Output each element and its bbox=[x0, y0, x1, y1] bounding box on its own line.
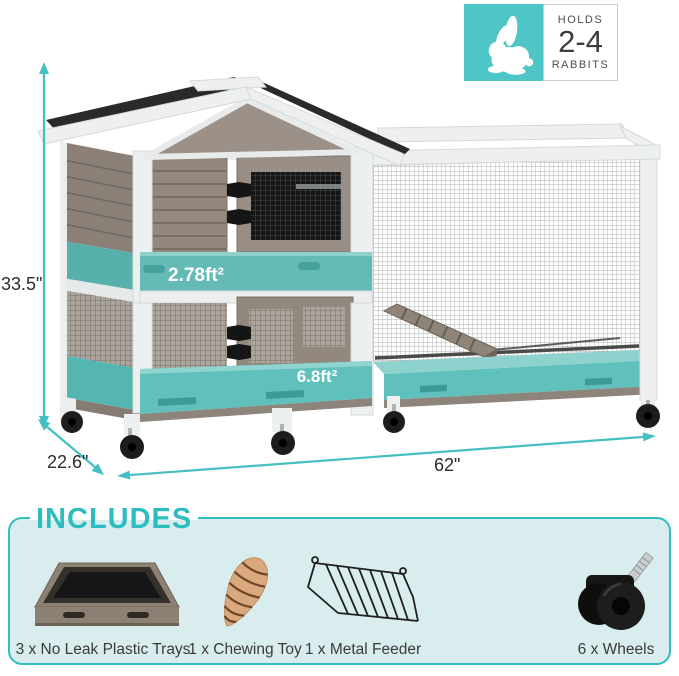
metal-feeder-icon bbox=[302, 541, 424, 639]
depth-label: 22.6" bbox=[47, 452, 88, 472]
list-item-label: 1 x Chewing Toy bbox=[186, 641, 304, 659]
upper-window bbox=[237, 156, 353, 252]
list-item-chew-toy: 1 x Chewing Toy bbox=[186, 519, 304, 663]
product-infographic: 2.78ft² bbox=[0, 0, 679, 676]
lower-area-label: 6.8ft² bbox=[297, 367, 338, 386]
list-item-tray: 3 x No Leak Plastic Trays bbox=[14, 519, 192, 663]
run-enclosure bbox=[372, 124, 660, 433]
upper-door bbox=[152, 158, 227, 253]
height-label: 33.5" bbox=[1, 274, 42, 294]
includes-panel: INCLUDES 3 x No Leak Plastic Trays bbox=[8, 517, 671, 665]
list-item-feeder: 1 x Metal Feeder bbox=[302, 519, 424, 663]
list-item-label: 3 x No Leak Plastic Trays bbox=[14, 641, 192, 659]
list-item-wheel: 6 x Wheels bbox=[550, 519, 679, 663]
rabbits-label: RABBITS bbox=[552, 59, 610, 71]
list-item-label: 1 x Metal Feeder bbox=[302, 641, 424, 659]
upper-tray-band: 2.78ft² bbox=[140, 252, 372, 291]
width-arrow bbox=[117, 433, 656, 480]
chewing-toy-icon bbox=[186, 541, 304, 639]
capacity-value: 2-4 bbox=[558, 26, 603, 59]
width-label: 62" bbox=[434, 455, 460, 475]
list-item-label: 6 x Wheels bbox=[550, 641, 679, 659]
upper-area-label: 2.78ft² bbox=[168, 265, 224, 286]
height-arrow bbox=[39, 62, 49, 428]
caster-wheel-icon bbox=[550, 541, 679, 639]
rabbit-icon bbox=[464, 4, 543, 81]
capacity-text: HOLDS 2-4 RABBITS bbox=[543, 4, 618, 81]
capacity-badge: HOLDS 2-4 RABBITS bbox=[464, 4, 618, 81]
hutch-side-panel bbox=[60, 141, 140, 424]
plastic-tray-icon bbox=[14, 541, 192, 639]
bottom-tray: 6.8ft² bbox=[140, 361, 372, 422]
